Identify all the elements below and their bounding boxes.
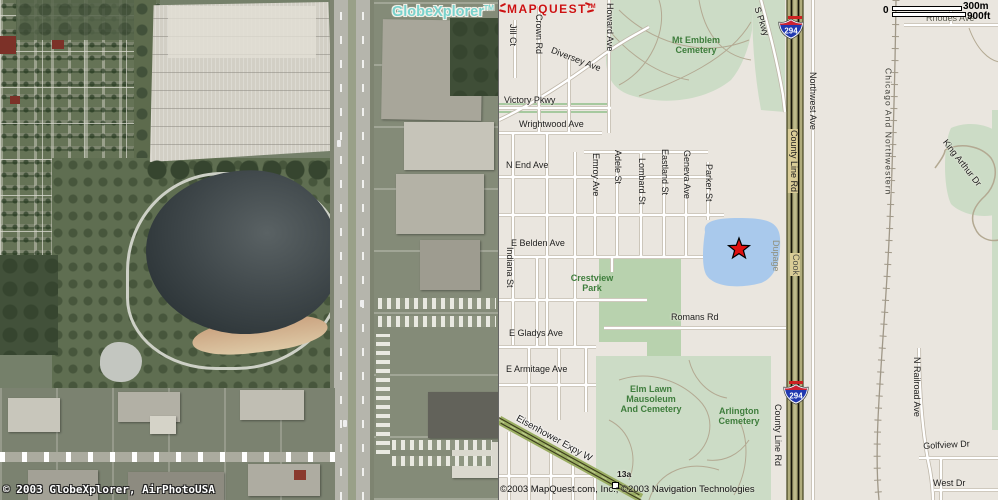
aerial-warehouse xyxy=(404,122,494,170)
globexplorer-tm: TM xyxy=(484,5,494,12)
aerial-red-roof xyxy=(52,40,64,49)
scale-bar-imperial xyxy=(892,12,966,17)
globexplorer-logo-text: GlobeXplorer xyxy=(392,4,484,20)
i294-shield: 294 xyxy=(783,383,809,405)
aerial-building xyxy=(8,398,60,432)
street-label: N Railroad Ave xyxy=(911,357,921,417)
street-label: 13a xyxy=(617,470,631,479)
aerial-truck-row xyxy=(392,456,492,466)
aerial-truck-row xyxy=(378,298,496,309)
street-label: County Line Rd xyxy=(772,404,782,466)
street-map-panel[interactable]: Jill CtCrown RdHoward AveDiversey AveVic… xyxy=(498,0,998,500)
street-label: E Gladys Ave xyxy=(509,329,563,339)
street-label: Jill Ct xyxy=(507,24,517,46)
aerial-road xyxy=(0,452,335,462)
i294-shield: 294 xyxy=(778,18,804,40)
street-label: Emroy Ave xyxy=(590,153,600,196)
aerial-building xyxy=(240,390,304,420)
street-label: Crown Rd xyxy=(533,14,543,54)
aerial-red-roof xyxy=(0,36,16,54)
aerial-forest xyxy=(0,255,58,355)
scale-imperial-label: 900ft xyxy=(967,11,990,22)
street-label: Indiana St xyxy=(504,247,514,288)
aerial-lane-markings xyxy=(362,0,364,500)
aerial-warehouse xyxy=(428,392,498,438)
street-label: E Belden Ave xyxy=(511,239,565,249)
aerial-red-roof xyxy=(10,96,20,104)
street-label: Chicago And Northwestern xyxy=(883,68,892,196)
destination-star-marker[interactable] xyxy=(726,236,752,262)
street-label: Eastland St xyxy=(659,149,669,195)
map-copyright: ©2003 MapQuest.com, Inc.; ©2003 Navigati… xyxy=(500,484,755,495)
street-label: Victory Pkwy xyxy=(504,96,555,106)
poi-label: Crestview Park xyxy=(571,274,614,294)
scale-bar-metric xyxy=(892,6,962,11)
aerial-red-roof xyxy=(294,470,306,480)
aerial-warehouse xyxy=(396,174,484,234)
aerial-lane-markings xyxy=(340,0,342,500)
scale-zero: 0 xyxy=(883,5,889,16)
aerial-photo-panel[interactable]: GlobeXplorerTM © 2003 GlobeXplorer, AirP… xyxy=(0,0,498,500)
aerial-trees xyxy=(450,18,498,96)
street-label: West Dr xyxy=(933,479,965,489)
aerial-building xyxy=(248,464,320,496)
aerial-highway xyxy=(330,0,374,500)
aerial-truck-row xyxy=(392,440,492,450)
street-label: Adele St xyxy=(612,150,622,184)
street-label: Parker St xyxy=(703,164,713,202)
street-label: Wrightwood Ave xyxy=(519,120,584,130)
street-label: Dupage xyxy=(770,240,780,272)
street-label: Howard Ave xyxy=(604,3,614,51)
street-label: Romans Rd xyxy=(671,313,719,323)
aerial-trees xyxy=(16,0,136,40)
street-label: N End Ave xyxy=(506,161,548,171)
map-comparison-view: GlobeXplorerTM © 2003 GlobeXplorer, AirP… xyxy=(0,0,998,500)
aerial-pond xyxy=(100,342,142,382)
aerial-building xyxy=(150,416,176,434)
aerial-vehicle xyxy=(343,420,347,427)
street-label: Northwest Ave xyxy=(807,72,817,130)
street-label: Geneva Ave xyxy=(681,150,691,199)
map-scale-bar: 0 300m 900ft xyxy=(881,1,998,25)
right-edge-green xyxy=(992,110,998,430)
street-label: Lombard St xyxy=(636,158,646,205)
mapquest-logo: MAPQUESTTM xyxy=(507,2,596,16)
street-label: County Line Rd xyxy=(788,129,798,193)
aerial-warehouse xyxy=(420,240,480,290)
aerial-copyright: © 2003 GlobeXplorer, AirPhotoUSA xyxy=(3,483,215,496)
i294-toll-road xyxy=(787,0,803,500)
poi-label: Mt Emblem Cemetery xyxy=(672,36,720,56)
aerial-parking-lot-upper xyxy=(168,6,316,58)
globexplorer-logo: GlobeXplorerTM xyxy=(392,4,494,20)
shield-number: 294 xyxy=(784,26,798,35)
street-label: E Armitage Ave xyxy=(506,365,567,375)
shield-number: 294 xyxy=(789,391,803,400)
poi-label: Arlington Cemetery xyxy=(718,407,759,427)
street-label: Cook xyxy=(790,253,800,276)
aerial-vehicle xyxy=(337,140,341,147)
aerial-truck-row xyxy=(376,334,390,454)
aerial-vehicle xyxy=(360,300,364,307)
mapquest-logo-text: MAPQUEST xyxy=(507,2,587,16)
poi-label: Elm Lawn Mausoleum And Cemetery xyxy=(620,385,681,415)
aerial-truck-row xyxy=(378,316,496,327)
